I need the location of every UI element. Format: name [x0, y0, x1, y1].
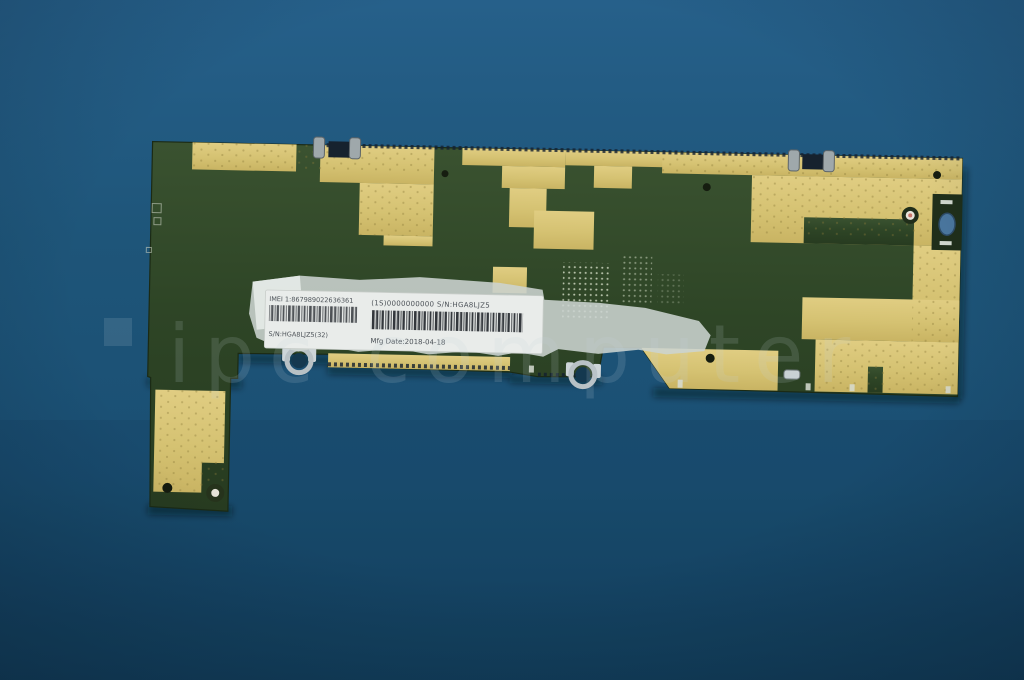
photo-vignette: [0, 0, 1024, 680]
photo-stage: IMEI 1:867989022636361 (1S)0000000000 S/…: [0, 0, 1024, 680]
motherboard-photo: IMEI 1:867989022636361 (1S)0000000000 S/…: [0, 0, 1024, 680]
